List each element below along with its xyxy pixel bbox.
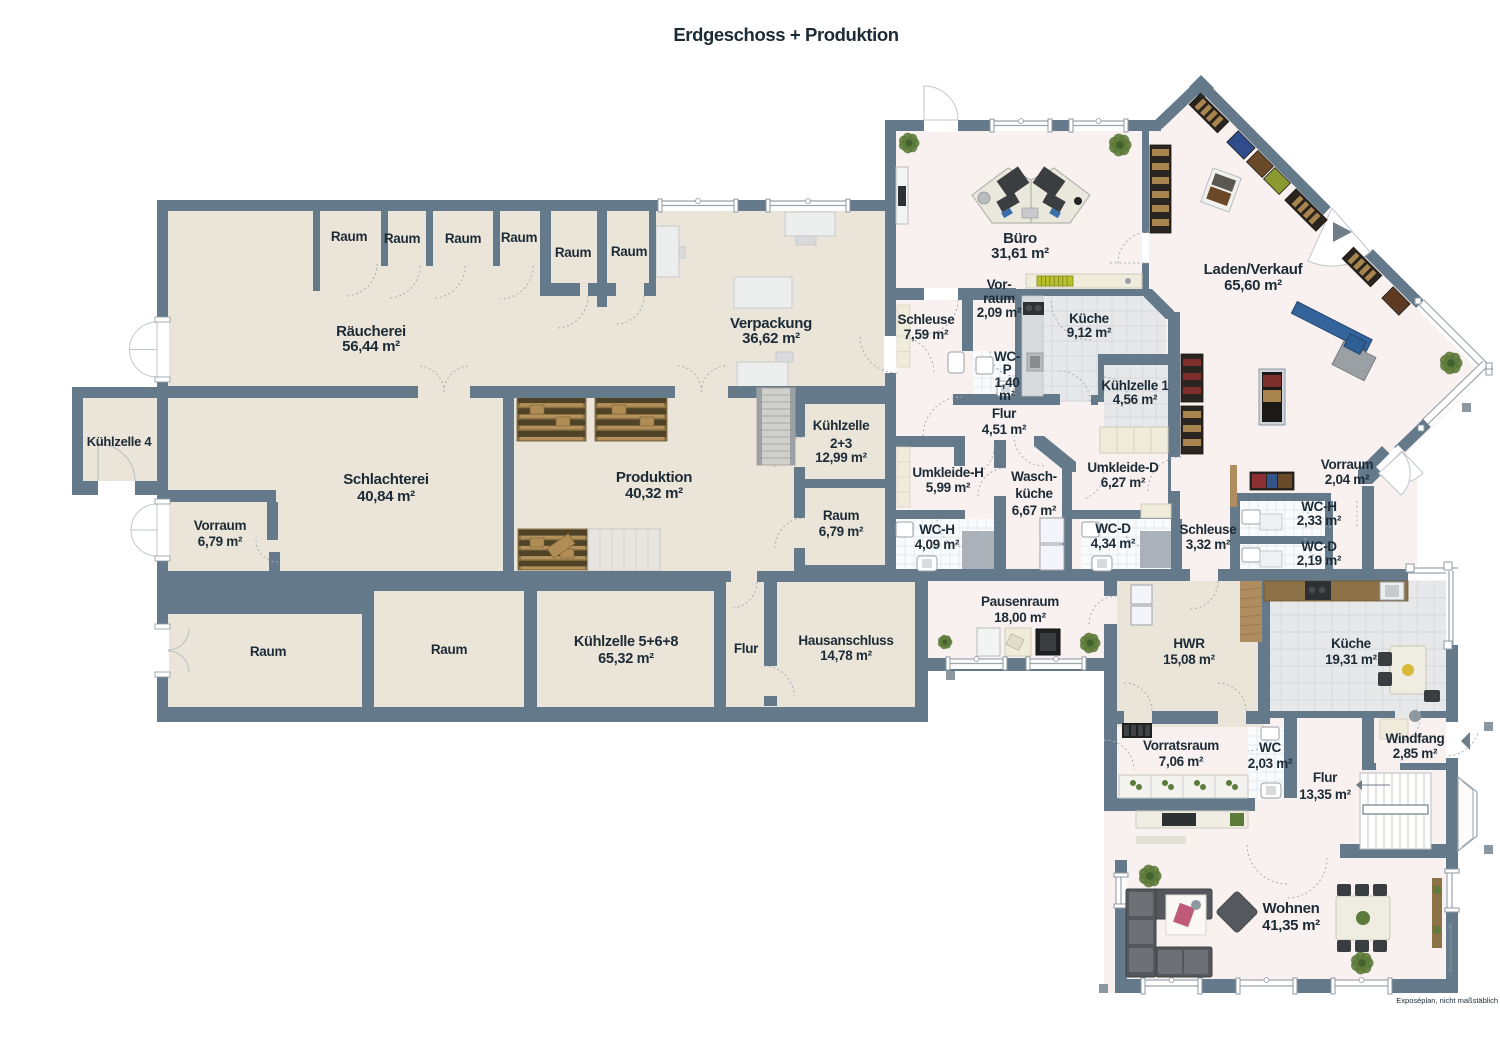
svg-text:Umkleide-H: Umkleide-H bbox=[912, 465, 983, 480]
svg-text:Vorratsraum: Vorratsraum bbox=[1143, 738, 1219, 753]
svg-text:Raum: Raum bbox=[250, 644, 287, 659]
svg-text:2,19 m²: 2,19 m² bbox=[1297, 553, 1342, 568]
svg-text:Pausenraum: Pausenraum bbox=[981, 594, 1059, 609]
svg-text:2+3: 2+3 bbox=[830, 436, 853, 451]
svg-text:Kühlzelle 4: Kühlzelle 4 bbox=[87, 434, 153, 449]
svg-text:Kühlzelle: Kühlzelle bbox=[813, 418, 870, 433]
svg-text:Raum: Raum bbox=[611, 244, 648, 259]
svg-text:Kühlzelle 1: Kühlzelle 1 bbox=[1101, 378, 1169, 393]
svg-text:Flur: Flur bbox=[1313, 770, 1338, 785]
svg-text:Raum: Raum bbox=[384, 231, 421, 246]
svg-text:Raum: Raum bbox=[445, 231, 482, 246]
svg-text:3,32 m²: 3,32 m² bbox=[1186, 537, 1231, 552]
svg-text:Hausanschluss: Hausanschluss bbox=[798, 633, 893, 648]
svg-text:12,99 m²: 12,99 m² bbox=[815, 450, 867, 465]
svg-text:14,78 m²: 14,78 m² bbox=[820, 648, 872, 663]
svg-text:56,44 m²: 56,44 m² bbox=[342, 338, 400, 355]
svg-text:18,00 m²: 18,00 m² bbox=[994, 610, 1046, 625]
svg-text:Küche: Küche bbox=[1331, 636, 1372, 651]
svg-text:WC: WC bbox=[1259, 740, 1281, 755]
svg-text:Vor-: Vor- bbox=[987, 277, 1012, 292]
svg-text:41,35 m²: 41,35 m² bbox=[1262, 917, 1320, 934]
svg-text:13,35 m²: 13,35 m² bbox=[1299, 787, 1351, 802]
svg-text:5,99 m²: 5,99 m² bbox=[926, 480, 971, 495]
svg-text:40,32 m²: 40,32 m² bbox=[625, 485, 683, 502]
svg-text:WC-H: WC-H bbox=[1301, 499, 1337, 514]
svg-text:Raum: Raum bbox=[331, 229, 368, 244]
svg-text:65,60 m²: 65,60 m² bbox=[1224, 277, 1282, 294]
svg-text:6,79 m²: 6,79 m² bbox=[198, 534, 243, 549]
svg-text:9,12 m²: 9,12 m² bbox=[1067, 325, 1112, 340]
svg-text:4,09 m²: 4,09 m² bbox=[915, 537, 960, 552]
svg-text:Umkleide-D: Umkleide-D bbox=[1087, 460, 1159, 475]
svg-text:7,06 m²: 7,06 m² bbox=[1159, 754, 1204, 769]
svg-text:65,32 m²: 65,32 m² bbox=[598, 651, 654, 667]
svg-text:2,09 m²: 2,09 m² bbox=[977, 305, 1022, 320]
svg-text:Schleuse: Schleuse bbox=[1180, 522, 1238, 537]
svg-text:Raum: Raum bbox=[555, 245, 592, 260]
svg-text:31,61 m²: 31,61 m² bbox=[991, 245, 1049, 262]
svg-text:2,04 m²: 2,04 m² bbox=[1325, 472, 1370, 487]
svg-text:Erdgeschoss + Produktion: Erdgeschoss + Produktion bbox=[673, 24, 898, 45]
svg-text:WC-H: WC-H bbox=[919, 522, 955, 537]
svg-text:Küche: Küche bbox=[1069, 311, 1110, 326]
svg-text:Kühlzelle 5+6+8: Kühlzelle 5+6+8 bbox=[574, 634, 679, 650]
svg-text:Schleuse: Schleuse bbox=[898, 312, 956, 327]
svg-text:19,31 m²: 19,31 m² bbox=[1325, 652, 1377, 667]
svg-text:4,56 m²: 4,56 m² bbox=[1113, 392, 1158, 407]
svg-text:Wohnen: Wohnen bbox=[1262, 900, 1319, 917]
svg-text:7,59 m²: 7,59 m² bbox=[904, 327, 949, 342]
svg-text:WC-D: WC-D bbox=[1095, 521, 1131, 536]
svg-text:raum: raum bbox=[983, 291, 1015, 306]
svg-text:m²: m² bbox=[999, 388, 1016, 403]
svg-text:Raum: Raum bbox=[431, 642, 468, 657]
svg-text:2,85 m²: 2,85 m² bbox=[1393, 746, 1438, 761]
svg-text:40,84 m²: 40,84 m² bbox=[357, 488, 415, 505]
svg-text:Laden/Verkauf: Laden/Verkauf bbox=[1204, 261, 1304, 278]
svg-text:Raum: Raum bbox=[823, 508, 860, 523]
svg-text:Flur: Flur bbox=[734, 641, 759, 656]
svg-text:WC-D: WC-D bbox=[1301, 539, 1337, 554]
svg-text:6,79 m²: 6,79 m² bbox=[819, 524, 864, 539]
svg-text:Vorraum: Vorraum bbox=[194, 518, 247, 533]
svg-text:4,51 m²: 4,51 m² bbox=[982, 422, 1027, 437]
svg-text:4,34 m²: 4,34 m² bbox=[1091, 536, 1136, 551]
svg-text:6,27 m²: 6,27 m² bbox=[1101, 475, 1146, 490]
svg-text:Produktion: Produktion bbox=[616, 469, 692, 486]
svg-text:Exposéplan, nicht maßstäblich: Exposéplan, nicht maßstäblich bbox=[1396, 996, 1498, 1005]
svg-text:Vorraum: Vorraum bbox=[1321, 457, 1374, 472]
svg-text:15,08 m²: 15,08 m² bbox=[1163, 652, 1215, 667]
svg-text:IllustrationCommoGrafik: IllustrationCommoGrafik bbox=[1448, 923, 1453, 972]
svg-text:küche: küche bbox=[1015, 486, 1053, 501]
svg-text:2,03 m²: 2,03 m² bbox=[1248, 756, 1293, 771]
svg-text:Flur: Flur bbox=[992, 406, 1017, 421]
svg-text:6,67 m²: 6,67 m² bbox=[1012, 503, 1057, 518]
svg-text:36,62 m²: 36,62 m² bbox=[742, 330, 800, 347]
svg-text:Schlachterei: Schlachterei bbox=[343, 471, 429, 488]
svg-text:2,33 m²: 2,33 m² bbox=[1297, 513, 1342, 528]
svg-text:Windfang: Windfang bbox=[1386, 731, 1445, 746]
svg-text:HWR: HWR bbox=[1173, 636, 1205, 651]
svg-text:Wasch-: Wasch- bbox=[1011, 469, 1057, 484]
svg-text:Raum: Raum bbox=[501, 230, 538, 245]
